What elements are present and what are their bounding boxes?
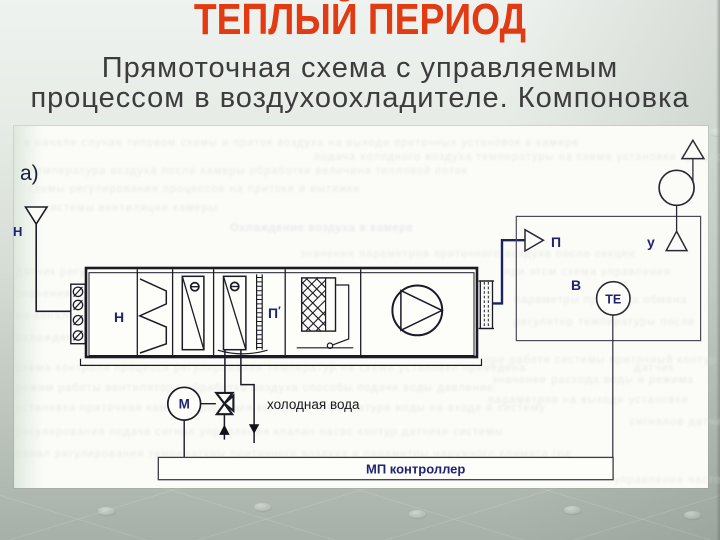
svg-text:В: В (571, 277, 581, 293)
svg-text:Н: Н (13, 224, 22, 239)
svg-text:холодная вода: холодная вода (267, 397, 360, 412)
svg-text:а): а) (20, 162, 39, 185)
svg-text:М: М (179, 397, 190, 412)
svg-text:МП контроллер: МП контроллер (366, 462, 465, 477)
svg-text:Н: Н (114, 309, 124, 325)
svg-text:у: у (647, 234, 655, 250)
svg-text:П: П (551, 234, 561, 250)
svg-text:ТЕ: ТЕ (605, 293, 621, 307)
